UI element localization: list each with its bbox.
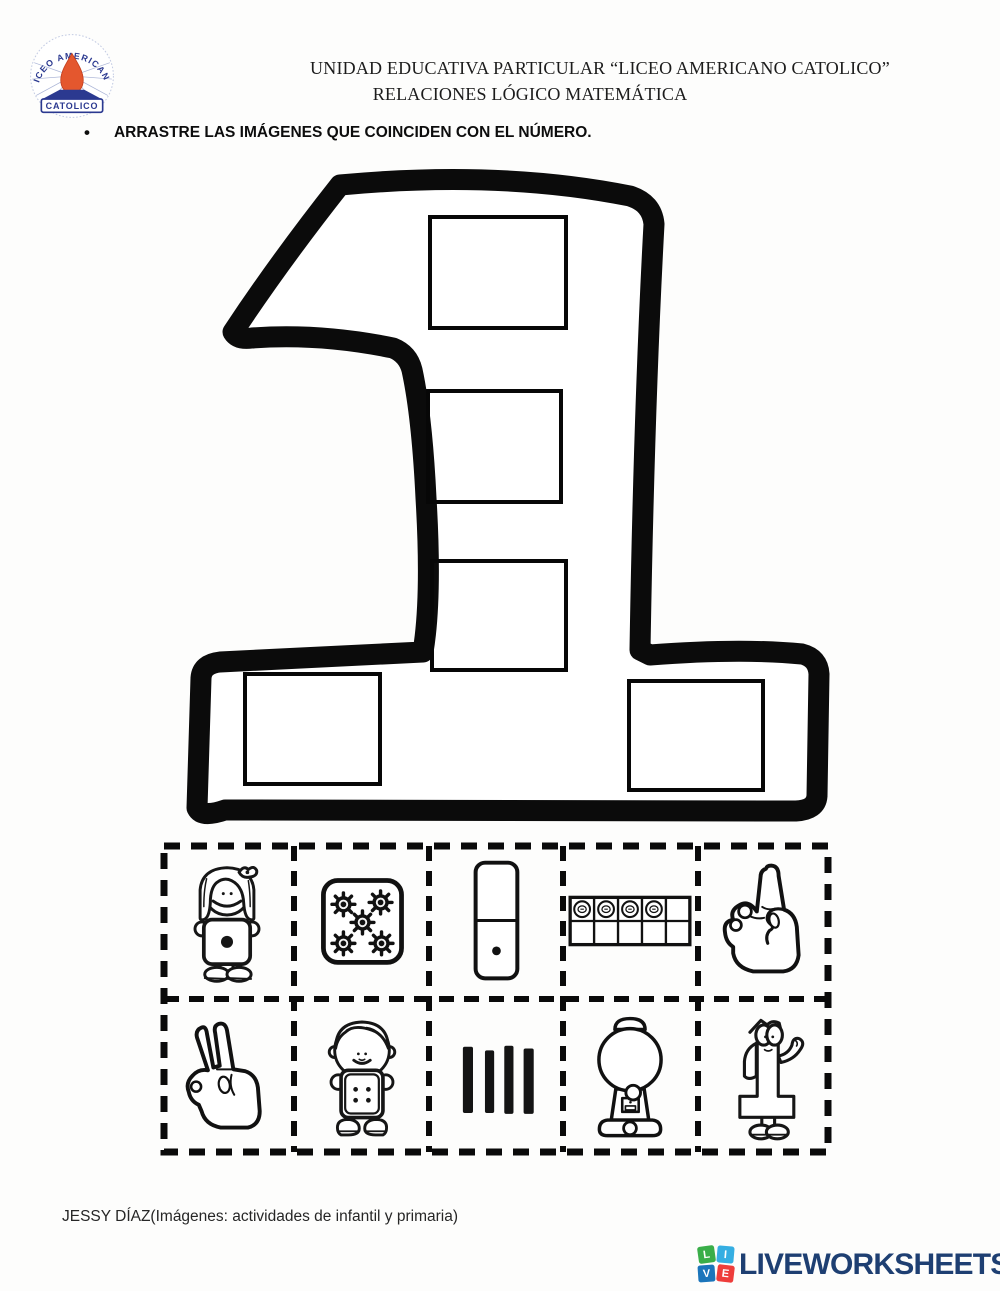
- girl-holding-card-one-dot-icon: [176, 857, 278, 985]
- school-name: UNIDAD EDUCATIVA PARTICULAR “LICEO AMERI…: [250, 58, 950, 79]
- boy-holding-card-four-dots-icon: [311, 1012, 413, 1144]
- card-girl-one-dot[interactable]: [160, 842, 294, 999]
- card-number-one-character[interactable]: [698, 999, 832, 1156]
- number-one-character-icon: [717, 1014, 813, 1142]
- card-gumball-machine[interactable]: [563, 999, 697, 1156]
- tile-l: L: [697, 1245, 716, 1264]
- liveworksheets-wordmark: LIVEWORKSHEETS: [739, 1248, 1000, 1282]
- tile-e: E: [716, 1264, 735, 1283]
- liveworksheets-logo: L I V E LIVEWORKSHEETS: [698, 1246, 1000, 1283]
- drop-zone-1[interactable]: [428, 215, 568, 330]
- tile-i: I: [716, 1245, 734, 1263]
- subject-title: RELACIONES LÓGICO MATEMÁTICA: [250, 84, 810, 105]
- drop-zone-5[interactable]: [627, 679, 765, 792]
- drop-zone-4[interactable]: [243, 672, 382, 786]
- gumball-machine-icon: [582, 1014, 678, 1142]
- hand-showing-two-fingers-icon: [177, 1016, 277, 1140]
- worksheet-page: LICEO AMERICANO CATOLICO UNIDAD EDUCATIV…: [0, 0, 1000, 1291]
- drop-zone-3[interactable]: [430, 559, 568, 672]
- card-die-five-gears[interactable]: [294, 842, 428, 999]
- author-credit: JESSY DÍAZ(Imágenes: actividades de infa…: [62, 1208, 458, 1226]
- card-with-five-gear-dots-icon: [312, 870, 412, 972]
- card-domino-one[interactable]: [429, 842, 563, 999]
- card-ten-frame-four[interactable]: [563, 842, 697, 999]
- tile-v: V: [697, 1264, 715, 1282]
- card-grid: [160, 842, 832, 1156]
- hand-showing-one-finger-icon: [715, 859, 815, 983]
- card-hand-two-fingers[interactable]: [160, 999, 294, 1156]
- school-logo: LICEO AMERICANO CATOLICO: [26, 34, 118, 118]
- instruction-text: ARRASTRE LAS IMÁGENES QUE COINCIDEN CON …: [114, 124, 592, 142]
- card-hand-one-finger[interactable]: [698, 842, 832, 999]
- ten-frame-four-coins-icon: [567, 891, 693, 951]
- liveworksheets-tiles-icon: L I V E: [698, 1246, 735, 1283]
- domino-one-dot-icon: [455, 857, 537, 985]
- bullet-point: •: [84, 124, 90, 142]
- drop-zone-2[interactable]: [426, 389, 563, 504]
- instruction-row: • ARRASTRE LAS IMÁGENES QUE COINCIDEN CO…: [84, 124, 592, 142]
- four-tally-bars-icon: [450, 1032, 542, 1124]
- logo-banner-text: CATOLICO: [46, 101, 99, 111]
- card-boy-four-dots[interactable]: [294, 999, 428, 1156]
- card-four-bars[interactable]: [429, 999, 563, 1156]
